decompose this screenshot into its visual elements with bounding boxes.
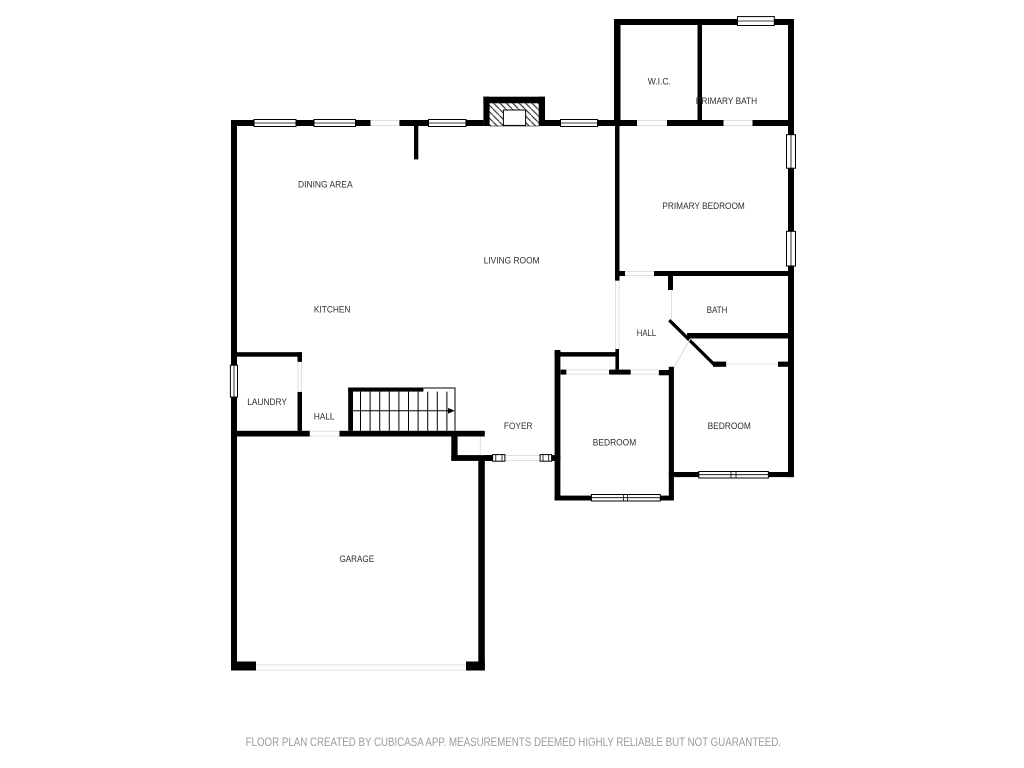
svg-text:W.I.C.: W.I.C.: [648, 77, 671, 88]
svg-text:LAUNDRY: LAUNDRY: [247, 397, 287, 408]
svg-text:GARAGE: GARAGE: [340, 554, 375, 565]
svg-text:HALL: HALL: [637, 328, 656, 339]
svg-text:PRIMARY BATH: PRIMARY BATH: [696, 96, 757, 107]
svg-text:FOYER: FOYER: [504, 421, 533, 432]
svg-text:HALL: HALL: [314, 412, 335, 423]
svg-text:LIVING ROOM: LIVING ROOM: [484, 256, 540, 267]
svg-text:DINING AREA: DINING AREA: [298, 180, 353, 191]
svg-text:BEDROOM: BEDROOM: [708, 421, 751, 432]
svg-text:FLOOR PLAN CREATED BY CUBICASA: FLOOR PLAN CREATED BY CUBICASA APP. MEAS…: [246, 735, 781, 749]
svg-text:BATH: BATH: [707, 305, 728, 316]
svg-text:BEDROOM: BEDROOM: [593, 437, 636, 448]
svg-text:PRIMARY BEDROOM: PRIMARY BEDROOM: [662, 201, 744, 212]
svg-text:KITCHEN: KITCHEN: [314, 305, 351, 316]
